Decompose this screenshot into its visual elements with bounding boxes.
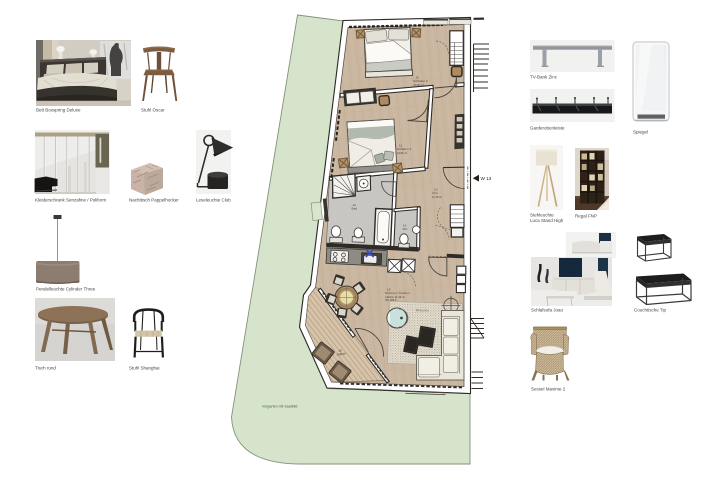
svg-text:Kleiderschrank Senzafine / Pol: Kleiderschrank Senzafine / Poliform (35, 198, 107, 203)
svg-text:Sessel Maxime 2: Sessel Maxime 2 (531, 387, 566, 392)
svg-text:Wohnen / Küchen: Wohnen / Küchen (385, 291, 410, 295)
svg-text:Flur: Flur (433, 191, 438, 195)
svg-text:20,35 m²: 20,35 m² (414, 83, 424, 87)
svg-text:Garderobenleiste: Garderobenleiste (530, 126, 565, 131)
svg-text:Couchtische Tip: Couchtische Tip (634, 308, 667, 313)
svg-text:Schlafsofa Joao: Schlafsofa Joao (531, 308, 564, 313)
svg-text:Stehleuchte: Stehleuchte (530, 213, 554, 218)
svg-text:Bad: Bad (352, 207, 358, 211)
svg-text:Bett Boxspring Deluxe: Bett Boxspring Deluxe (36, 108, 81, 113)
svg-text:Leseleuchte Club: Leseleuchte Club (196, 198, 231, 203)
svg-text:Nachttisch Pappelhocker: Nachttisch Pappelhocker (129, 198, 179, 203)
svg-text:16,86 m²: 16,86 m² (397, 151, 407, 155)
svg-text:Regal FNP: Regal FNP (575, 214, 597, 219)
svg-text:Pendelleuchte Cylinder Three: Pendelleuchte Cylinder Three (36, 287, 96, 292)
svg-text:Tisch rund: Tisch rund (35, 366, 56, 371)
svg-text:Spiegel: Spiegel (633, 130, 648, 135)
svg-text:BH 286,5: BH 286,5 (386, 298, 397, 302)
svg-text:W 13: W 13 (481, 176, 492, 181)
svg-text:TV-Bank Zinc: TV-Bank Zinc (530, 75, 558, 80)
svg-text:Vorgarten mit Saatbild: Vorgarten mit Saatbild (262, 405, 297, 409)
svg-text:Stuhl Shanghai: Stuhl Shanghai (129, 366, 160, 371)
svg-text:Fläche: 31,39 m²: Fläche: 31,39 m² (386, 295, 406, 299)
svg-text:Stuhl Oscar: Stuhl Oscar (141, 108, 165, 113)
svg-text:Schlafen 2: Schlafen 2 (413, 79, 428, 83)
svg-text:WC: WC (403, 227, 409, 231)
svg-text:Luca Stand High: Luca Stand High (530, 218, 564, 223)
svg-text:11,28 m²: 11,28 m² (432, 195, 442, 199)
svg-text:Schlafen 1: Schlafen 1 (397, 147, 412, 151)
svg-text:BRUUNO: BRUUNO (416, 308, 430, 312)
